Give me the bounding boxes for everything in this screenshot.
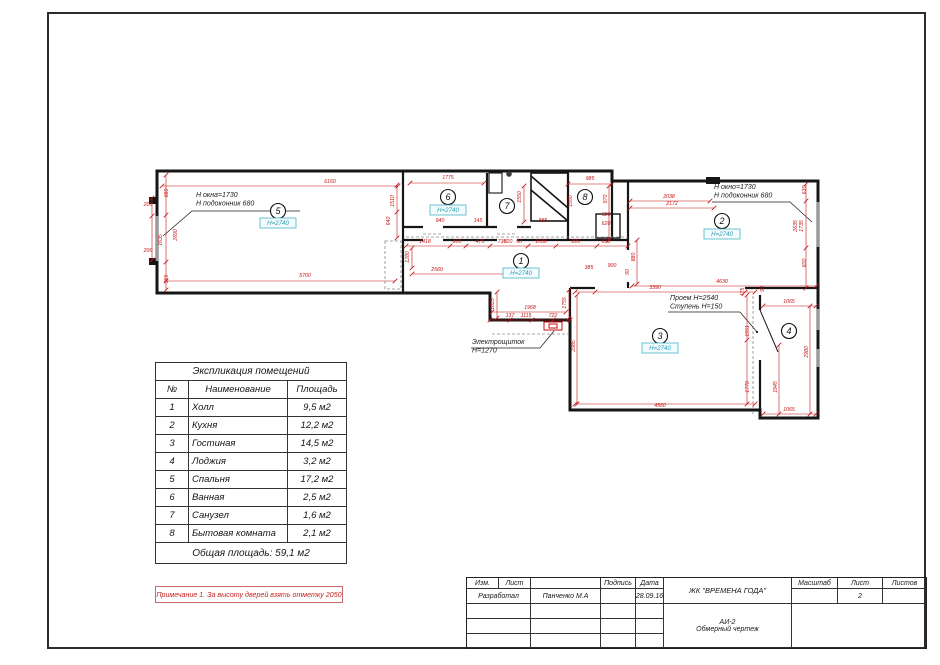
dimension-label: 1635 xyxy=(158,234,164,246)
tb-empty xyxy=(467,604,531,619)
explication-table: Экспликация помещений № Наименование Пло… xyxy=(155,362,347,564)
dimension-label: 2985 xyxy=(571,340,577,353)
note: Примечание 1. За высоту дверей взять отм… xyxy=(155,586,343,603)
tb-role-developed: Разработал xyxy=(467,589,531,604)
cell-num: 7 xyxy=(156,507,189,525)
dimension-label: 1030 xyxy=(535,239,547,245)
room-number: 2 xyxy=(718,216,724,226)
cell-num: 2 xyxy=(156,417,189,435)
dimension-label: 2980 xyxy=(804,346,810,359)
dimension-label: 2038 xyxy=(662,194,675,200)
tb-empty xyxy=(531,578,601,589)
tb-author: Панченко М.А xyxy=(531,589,601,604)
cell-num: 4 xyxy=(156,453,189,471)
electro-panel-icon xyxy=(544,322,562,330)
tb-doc-name: Обмерный чертеж xyxy=(696,626,759,633)
tb-sheet-number: 2 xyxy=(838,589,883,604)
tb-empty xyxy=(601,619,636,634)
note-text: Примечание 1. За высоту дверей взять отм… xyxy=(156,591,341,599)
dimension-label: 1945 xyxy=(773,381,779,393)
dimension-label: 1065 xyxy=(783,407,795,413)
col-header-area: Площадь xyxy=(288,381,347,399)
cell-name: Санузел xyxy=(189,507,288,525)
height-badge-text: Н=2740 xyxy=(649,345,671,352)
height-badge-text: Н=2740 xyxy=(711,231,733,238)
annotation-opening: Проем Н=2540 xyxy=(670,295,718,302)
cell-name: Лоджия xyxy=(189,453,288,471)
dimension-label: 970 xyxy=(603,195,609,204)
dimension-label: 1968 xyxy=(524,305,536,311)
cell-name: Кухня xyxy=(189,417,288,435)
tb-label-sheet2: Лист xyxy=(838,578,883,589)
cell-area: 14,5 м2 xyxy=(288,435,347,453)
tb-date-value: 28.09.16 xyxy=(636,589,664,604)
dimension-label: 90 xyxy=(760,286,766,292)
dimension-label: 1550 xyxy=(517,191,523,203)
dimension-label: 137 xyxy=(506,313,516,319)
dimension-label: 880 xyxy=(631,253,637,262)
dimension-label: 940 xyxy=(436,218,445,224)
room-number: 3 xyxy=(657,331,662,341)
cell-name: Холл xyxy=(189,399,288,417)
height-badge-text: Н=2740 xyxy=(437,207,459,214)
tb-label-sheet: Лист xyxy=(499,578,531,589)
table-row: 7Санузел1,6 м2 xyxy=(156,507,347,525)
dimension-label: 1770 xyxy=(745,381,751,393)
cell-num: 3 xyxy=(156,435,189,453)
dimension-label: 1551 xyxy=(745,325,751,337)
tb-label-date: Дата xyxy=(636,578,664,589)
dimension-label: 200 xyxy=(143,248,153,254)
tb-empty xyxy=(601,604,636,619)
cell-name: Спальня xyxy=(189,471,288,489)
title-block: Изм. Лист Подпись Дата Разработал Панчен… xyxy=(466,577,927,649)
dimension-label: 6160 xyxy=(324,179,336,185)
dimension-label: 680 xyxy=(164,189,170,198)
table-row: 3Гостиная14,5 м2 xyxy=(156,435,347,453)
room-number: 1 xyxy=(518,256,523,266)
annotation-electro-panel: Н=1270 xyxy=(472,348,497,355)
tb-empty xyxy=(636,634,664,648)
cell-area: 2,5 м2 xyxy=(288,489,347,507)
dimension-label: 1115 xyxy=(521,313,532,319)
cell-area: 1,6 м2 xyxy=(288,507,347,525)
dimension-label: 5700 xyxy=(299,273,311,279)
dimension-label: 820 xyxy=(504,239,513,245)
dimension-label: 475 xyxy=(476,239,485,245)
dimension-label: 385 xyxy=(585,265,594,271)
dimension-label: 365 xyxy=(164,275,170,284)
dimension-label: 1065 xyxy=(783,299,795,305)
room-marks: 1Н=27402Н=27403Н=274045Н=27406Н=274078 xyxy=(260,190,797,354)
dimension-label: 3390 xyxy=(649,285,661,291)
tb-empty xyxy=(636,604,664,619)
room-number: 8 xyxy=(582,192,587,202)
tb-doc-code: АИ-2 xyxy=(720,619,736,626)
room-number: 6 xyxy=(445,192,450,202)
cell-area: 12,2 м2 xyxy=(288,417,347,435)
tb-doc: АИ-2 Обмерный чертеж xyxy=(664,604,792,648)
floor-plan: 6160680269016353652002005700151064017759… xyxy=(0,0,940,665)
height-badge-text: Н=2740 xyxy=(267,220,289,227)
annotation-window-right: Н окно=1730 xyxy=(714,184,756,191)
tb-label-sheets: Листов xyxy=(883,578,926,589)
cell-area: 3,2 м2 xyxy=(288,453,347,471)
tb-scale-value xyxy=(792,589,838,604)
col-header-name: Наименование xyxy=(189,381,288,399)
dimension-label: 1735 xyxy=(799,220,805,232)
annotation-electro-panel: Электрощиток xyxy=(472,339,525,346)
dimension-label: 1755 xyxy=(562,297,568,309)
dimension-label: 520 xyxy=(602,212,611,218)
cell-num: 1 xyxy=(156,399,189,417)
total-area: Общая площадь: 59,1 м2 xyxy=(156,543,347,564)
tb-label-signature: Подпись xyxy=(601,578,636,589)
annotation-window-left: Н окна=1730 xyxy=(196,192,238,199)
dimension-label: 1280 xyxy=(405,251,411,263)
room-number: 4 xyxy=(786,326,791,336)
dimension-label: 90 xyxy=(625,269,631,275)
dimension-label: 1025 xyxy=(490,298,496,310)
dimension-label: 50 xyxy=(516,239,522,245)
vent-block-icon xyxy=(706,177,720,184)
dimension-label: 630 xyxy=(802,186,808,195)
dimension-label: 475 xyxy=(740,288,746,297)
dimension-label: 1775 xyxy=(442,175,454,181)
dimension-label: 800 xyxy=(453,239,462,245)
table-row: 5Спальня17,2 м2 xyxy=(156,471,347,489)
tb-empty xyxy=(467,634,531,648)
cell-area: 2,1 м2 xyxy=(288,525,347,543)
dimension-label: 1510 xyxy=(390,195,396,207)
col-header-num: № xyxy=(156,381,189,399)
tb-label-scale: Масштаб xyxy=(792,578,838,589)
drawing-sheet: 6160680269016353652002005700151064017759… xyxy=(0,0,940,665)
table-header-row: № Наименование Площадь xyxy=(156,381,347,399)
cell-name: Бытовая комната xyxy=(189,525,288,543)
dimension-label: 200 xyxy=(143,202,153,208)
dimension-label: 1550 xyxy=(568,195,574,207)
dimension-label: 722 xyxy=(549,313,558,319)
dimension-label: 640 xyxy=(386,217,392,226)
tb-empty xyxy=(467,619,531,634)
cell-name: Гостиная xyxy=(189,435,288,453)
tb-empty xyxy=(636,619,664,634)
dimension-label: 600 xyxy=(802,259,808,268)
annotation-window-left: Н подоконник 680 xyxy=(196,200,254,208)
stairs-hatch-icon xyxy=(531,173,568,221)
cell-area: 17,2 м2 xyxy=(288,471,347,489)
dimension-label: 985 xyxy=(586,176,595,182)
column-marker-icon xyxy=(506,171,512,177)
tb-empty xyxy=(531,619,601,634)
tb-empty xyxy=(531,604,601,619)
tb-project-name: ЖК "ВРЕМЕНА ГОДА" xyxy=(664,578,792,604)
dimension-label: 810 xyxy=(572,239,581,245)
dimension-label: 620 xyxy=(602,221,611,227)
explication-title: Экспликация помещений xyxy=(156,363,347,381)
dimension-label: 610 xyxy=(602,239,611,245)
annotation-opening: Ступень Н=150 xyxy=(670,304,722,311)
cell-name: Ванная xyxy=(189,489,288,507)
dimension-label: 2172 xyxy=(665,201,678,207)
tb-empty xyxy=(531,634,601,648)
tb-empty xyxy=(601,634,636,648)
tb-label-izm: Изм. xyxy=(467,578,499,589)
height-badge-text: Н=2740 xyxy=(510,270,532,277)
dimension-label: 4630 xyxy=(716,279,728,285)
cell-num: 8 xyxy=(156,525,189,543)
dimension-label: 1418 xyxy=(419,239,431,245)
table-row: 2Кухня12,2 м2 xyxy=(156,417,347,435)
table-row: 6Ванная2,5 м2 xyxy=(156,489,347,507)
tb-signature-cell xyxy=(601,589,636,604)
table-row: 4Лоджия3,2 м2 xyxy=(156,453,347,471)
dimension-label: 900 xyxy=(608,263,617,269)
dimension-label: 4560 xyxy=(654,403,666,409)
table-row: 8Бытовая комната2,1 м2 xyxy=(156,525,347,543)
cell-num: 6 xyxy=(156,489,189,507)
dimension-label: 2690 xyxy=(173,229,179,242)
cell-area: 9,5 м2 xyxy=(288,399,347,417)
table-row: 1Холл9,5 м2 xyxy=(156,399,347,417)
dimension-label: 2560 xyxy=(430,267,443,273)
tb-empty xyxy=(883,589,926,604)
dimension-label: 885 xyxy=(539,218,548,224)
annotation-window-right: Н подоконник 680 xyxy=(714,192,772,200)
dimension-label: 145 xyxy=(474,218,483,224)
cell-num: 5 xyxy=(156,471,189,489)
